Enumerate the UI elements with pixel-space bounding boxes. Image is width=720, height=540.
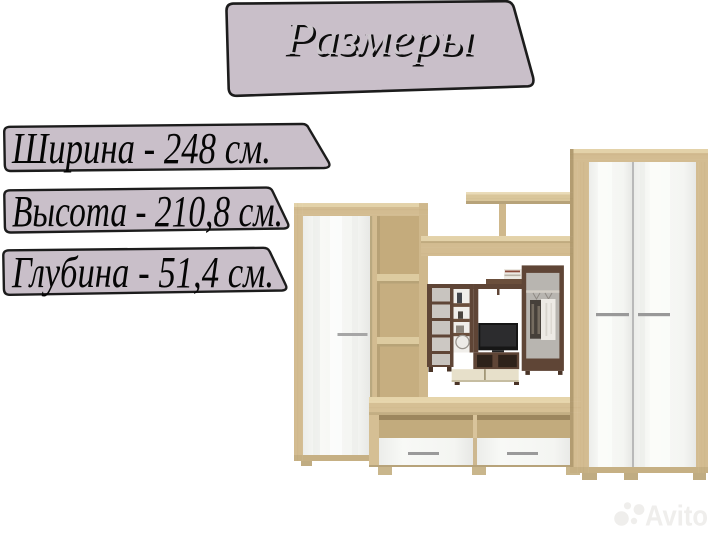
svg-text:Ширина - 248 см.: Ширина - 248 см. bbox=[11, 124, 271, 173]
svg-text:Глубина - 51,4 см.: Глубина - 51,4 см. bbox=[11, 248, 274, 297]
svg-text:Avito: Avito bbox=[645, 501, 708, 533]
svg-text:Размеры: Размеры bbox=[282, 12, 473, 65]
svg-text:Высота - 210,8 см.: Высота - 210,8 см. bbox=[12, 187, 283, 236]
